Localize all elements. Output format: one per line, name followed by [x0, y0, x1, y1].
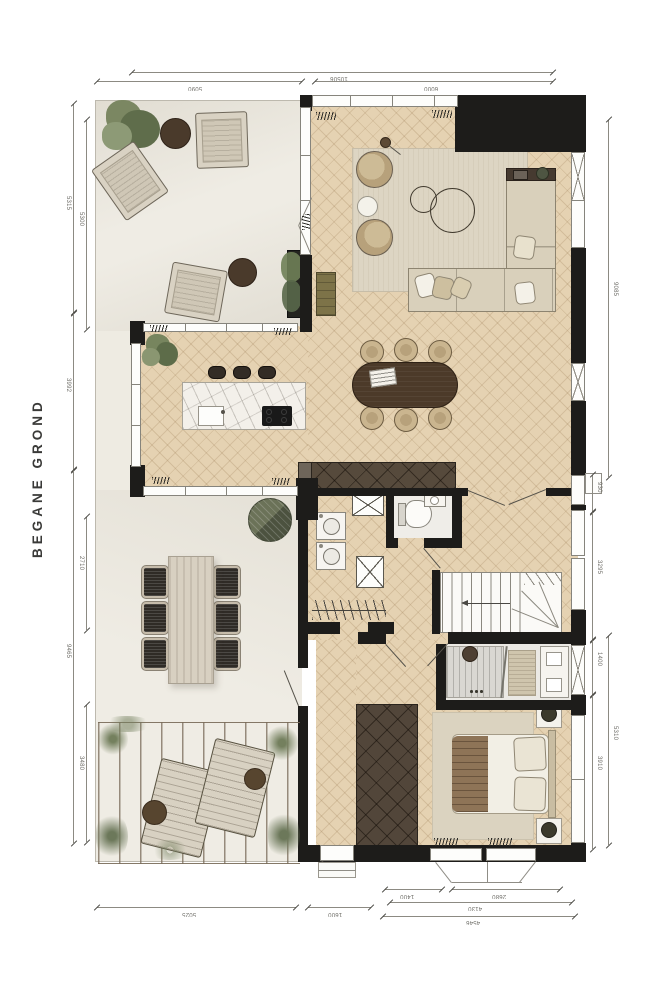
wall [571, 843, 586, 862]
dimension-line [315, 81, 553, 82]
burner [266, 417, 272, 423]
vine-plant [268, 810, 300, 860]
kitchen-plant [142, 348, 160, 366]
vent-symbol [316, 112, 336, 120]
bed-headboard [548, 730, 556, 818]
terrace-table-round [228, 258, 257, 287]
dimension-label: 3910 [595, 756, 602, 770]
dimension-line [308, 907, 371, 908]
dining-chair [394, 338, 418, 362]
window-sash [572, 364, 584, 400]
dryer-knob [319, 544, 323, 548]
shaft-box [352, 494, 384, 516]
coffee-table-large [430, 188, 475, 233]
sliding-door-kitchen-south [143, 486, 298, 496]
window-mullion [434, 95, 435, 107]
wall [298, 496, 308, 640]
dimension-label: 2710 [77, 556, 84, 570]
washbasin-bowl [430, 496, 439, 505]
stoop-step-line [318, 870, 356, 871]
canopy-post [487, 862, 488, 882]
dimension-label: 9465 [64, 644, 71, 658]
console-cabinet [316, 272, 336, 316]
canopy-edge [435, 862, 452, 883]
vent-symbol [274, 328, 292, 335]
dimension-line [592, 512, 593, 640]
page-title: BEGANE GROND [30, 388, 45, 558]
dimension-line [97, 907, 296, 908]
window-sash [572, 647, 584, 693]
dining-chair [394, 408, 418, 432]
dimension-line [73, 104, 74, 313]
shower-controls [470, 690, 473, 693]
washer-knob [319, 514, 323, 518]
window-mullion [185, 486, 186, 496]
terrace-armchair [164, 262, 228, 323]
bar-stool [258, 366, 276, 379]
wall [571, 610, 586, 645]
window-mullion [392, 95, 393, 107]
wall [432, 570, 440, 634]
wall [571, 695, 586, 715]
dimension-label: 3480 [77, 756, 84, 770]
window-bedroom-south [430, 848, 482, 861]
vent-symbol [150, 325, 168, 332]
dimension-label: 1400 [595, 652, 602, 666]
wall [300, 255, 312, 332]
dimension-label: 5315 [64, 196, 71, 210]
dimension-line [608, 120, 609, 477]
nightstand-plant [541, 822, 557, 838]
dimension-line [592, 640, 593, 695]
dimension-line [452, 889, 560, 890]
vanity-sink [546, 652, 562, 666]
washer-drum [323, 518, 340, 535]
window-mullion [262, 323, 263, 332]
window-mullion [350, 95, 351, 107]
wall [571, 401, 586, 475]
bed-pillow [513, 776, 546, 811]
window-living-north [312, 95, 458, 107]
window-mullion [571, 200, 585, 201]
vine-plant [96, 812, 128, 860]
sideboard [298, 462, 456, 489]
window-mullion [300, 155, 311, 156]
window-mullion [226, 323, 227, 332]
dimension-label: 4130 [468, 904, 482, 911]
dimension-line [86, 120, 87, 329]
dining-table [352, 362, 458, 408]
burner [281, 417, 287, 423]
window-sash [572, 154, 584, 200]
wall [306, 622, 340, 634]
dimension-line [97, 81, 302, 82]
wall [296, 488, 468, 496]
wall [298, 640, 308, 668]
wall [546, 488, 571, 496]
side-table-round [357, 196, 378, 217]
vent-symbol [272, 478, 290, 485]
window-kitchen-west [131, 343, 141, 467]
armchair-cushion [171, 269, 221, 315]
dimension-label: 3992 [64, 378, 71, 392]
swivel-armchair [356, 151, 393, 188]
dryer-drum [323, 548, 340, 565]
dimension-label: 6000 [424, 84, 438, 91]
dining-chair [360, 340, 384, 364]
wall [448, 632, 571, 644]
terrace-table-round [160, 118, 191, 149]
window-mullion [131, 425, 141, 426]
front-door [571, 475, 585, 505]
wall [358, 632, 386, 644]
floor-plan: BEGANE GROND [0, 0, 650, 1000]
window-hall-east [571, 510, 585, 556]
dimension-label: 4546 [466, 918, 480, 925]
stair-arrow-head [461, 600, 468, 606]
stair-winder-treads [524, 573, 561, 585]
vanity-sink [546, 678, 562, 692]
dimension-line [592, 475, 593, 512]
dimension-label: 5090 [188, 84, 202, 91]
vine-plant [104, 716, 152, 732]
terrace-armchair [195, 111, 249, 169]
window-mullion [185, 323, 186, 332]
window-mullion [571, 779, 585, 780]
dimension-label: 9085 [611, 282, 618, 296]
garden-chair [142, 566, 168, 598]
window-hall-east [571, 558, 585, 610]
dimension-label: 3295 [595, 560, 602, 574]
garden-chair [214, 602, 240, 634]
back-door [320, 845, 354, 861]
vine-plant [266, 724, 298, 762]
garden-chair [214, 566, 240, 598]
dimension-line [86, 705, 87, 842]
dimension-line [608, 636, 609, 845]
garden-chair [214, 638, 240, 670]
dimension-line [86, 517, 87, 630]
garden-side-table [244, 768, 266, 790]
bath-mat [508, 650, 536, 696]
dimension-label: 5310 [611, 726, 618, 740]
wall [424, 538, 462, 548]
dimension-label: 10506 [330, 74, 348, 81]
garden-dining-table [168, 556, 214, 684]
planter-plants [282, 280, 302, 312]
rain-shower-head [462, 646, 478, 662]
sofa-pillow [514, 281, 537, 305]
window-mullion [262, 486, 263, 496]
sofa-tray [513, 170, 528, 180]
vine-plant [150, 840, 190, 860]
boiler-unit [356, 556, 384, 588]
garden-chair [142, 638, 168, 670]
dimension-label: 2680 [492, 892, 506, 899]
stair-direction-arrow [468, 603, 510, 604]
dining-chair [428, 340, 452, 364]
round-tree-hatch [248, 498, 292, 542]
bar-stool [208, 366, 226, 379]
vent-symbol [434, 838, 458, 846]
dimension-line [592, 695, 593, 849]
garden-side-table [142, 800, 167, 825]
table-napkin [369, 367, 397, 387]
dimension-line [390, 902, 572, 903]
canopy-front [452, 882, 522, 883]
dimension-line [132, 72, 553, 73]
window-mullion [131, 384, 141, 385]
sink-faucet [221, 410, 225, 414]
wall [571, 248, 586, 363]
sofa-pillow [513, 235, 537, 261]
dimension-line [73, 313, 74, 470]
wardrobe [356, 704, 418, 850]
dimension-line [383, 916, 575, 917]
vent-symbol [152, 477, 170, 484]
dining-chair [360, 406, 384, 430]
dimension-label: 930 [595, 482, 602, 493]
armchair-cushion [201, 118, 242, 162]
canopy-edge [519, 861, 536, 882]
bed-throw [452, 736, 488, 812]
burner [281, 409, 287, 415]
garden-boundary-left [95, 100, 96, 862]
dimension-line [73, 470, 74, 843]
bed-pillow [513, 736, 547, 772]
bar-stool [233, 366, 251, 379]
dining-chair [428, 406, 452, 430]
coat-rack-rail [312, 610, 386, 611]
dimension-label: 5300 [77, 212, 84, 226]
dimension-label: 5025 [182, 910, 196, 917]
burner [266, 409, 272, 415]
window-bedroom-south [486, 848, 536, 861]
vent-symbol [302, 214, 310, 230]
island-sink [198, 406, 224, 426]
dimension-line [385, 889, 442, 890]
wall [386, 538, 398, 548]
garden-chair [142, 602, 168, 634]
dimension-label: 1600 [328, 910, 342, 917]
dimension-label: 1400 [400, 892, 414, 899]
swivel-armchair [356, 219, 393, 256]
sofa-plant [536, 167, 549, 180]
vent-symbol [432, 110, 452, 118]
wall [455, 95, 586, 152]
window-mullion [226, 486, 227, 496]
corridor-floor [316, 640, 358, 858]
vent-symbol [488, 838, 512, 846]
wall [444, 700, 571, 710]
